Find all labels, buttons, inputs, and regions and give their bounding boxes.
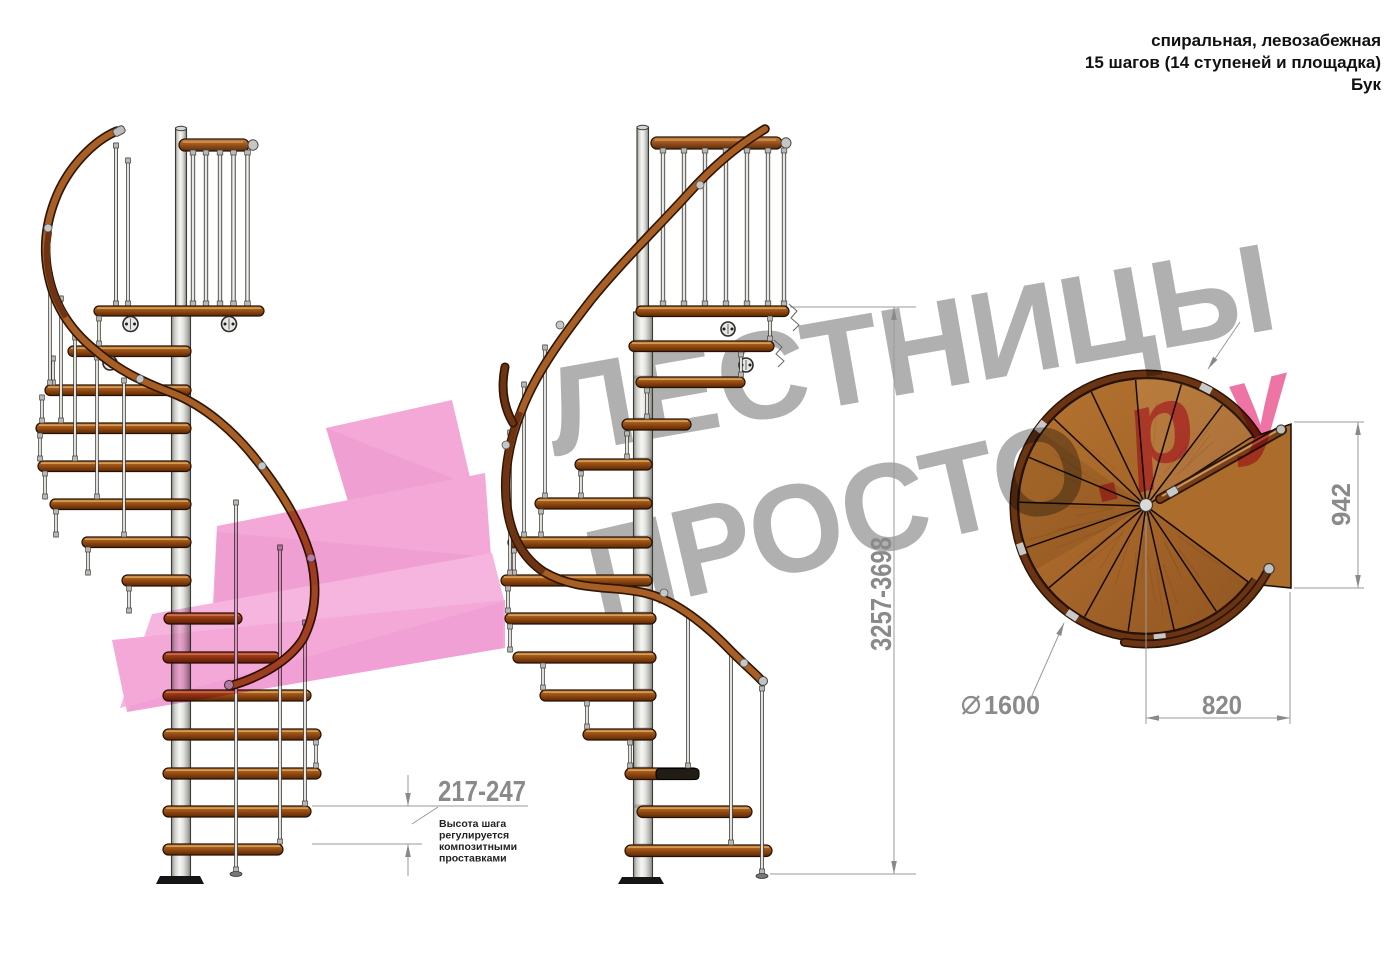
svg-text:регулируется: регулируется [439,830,509,842]
svg-text:проставками: проставками [439,853,507,865]
svg-text:820: 820 [1202,690,1242,720]
svg-text:15 шагов (14 ступеней и площад: 15 шагов (14 ступеней и площадка) [1085,53,1381,72]
svg-text:спиральная, левозабежная: спиральная, левозабежная [1151,31,1381,50]
svg-text:композитными: композитными [439,841,517,853]
svg-text:942: 942 [1326,483,1356,526]
svg-text:1600: 1600 [984,690,1040,720]
svg-text:Высота шага: Высота шага [439,818,506,830]
svg-text:3257-3698: 3257-3698 [866,537,898,651]
svg-text:217-247: 217-247 [438,776,526,808]
svg-text:Бук: Бук [1351,75,1381,94]
